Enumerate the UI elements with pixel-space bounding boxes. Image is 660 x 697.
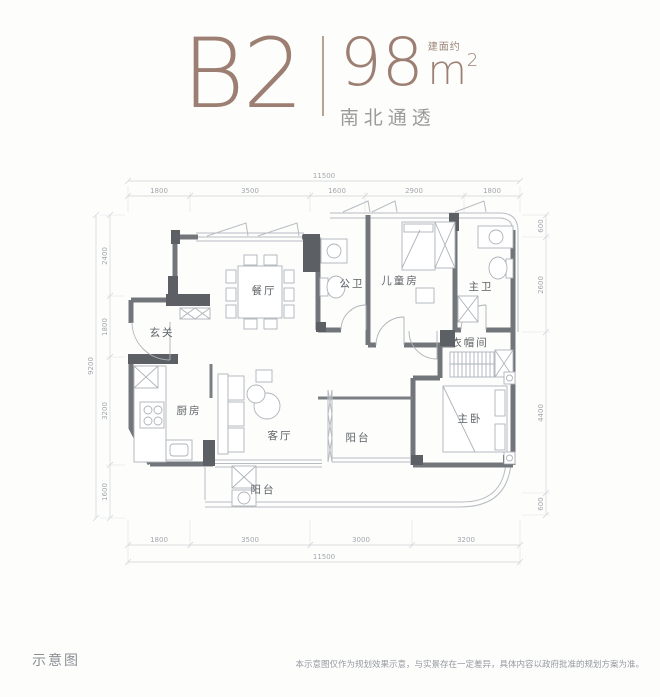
public-bath-door-arc <box>341 305 366 330</box>
dim-right-seg-3: 4400 <box>537 404 545 422</box>
dim-bottom: 1800 3500 3000 3200 11500 <box>125 536 523 565</box>
room-label-living: 客厅 <box>268 429 293 442</box>
shoe-cabinet <box>180 308 210 319</box>
dim-left-seg-3: 3200 <box>101 402 109 420</box>
room-label-master-bath: 主卫 <box>469 281 494 293</box>
room-label-public-bath: 公卫 <box>340 278 365 290</box>
coffee-table <box>247 385 280 419</box>
dim-right-seg-4: 600 <box>537 497 545 510</box>
dim-top-seg-4: 2900 <box>405 187 423 195</box>
schematic-label: 示意图 <box>32 650 80 670</box>
room-label-cloakroom: 衣帽间 <box>451 336 489 349</box>
master-bath-fixtures <box>458 226 513 322</box>
kids-room-door-arc <box>376 317 404 345</box>
dim-bottom-seg-2: 3500 <box>241 536 259 544</box>
dim-left-total: 9200 <box>87 357 95 375</box>
room-label-balcony-east: 阳台 <box>346 431 371 444</box>
floor-plan: 11500 1800 3500 1600 2900 1800 1800 3500… <box>0 0 660 697</box>
room-label-dining: 餐厅 <box>252 284 277 297</box>
dim-top-seg-2: 3500 <box>241 187 259 195</box>
dim-top-seg-1: 1800 <box>150 187 168 195</box>
dim-bottom-total: 11500 <box>313 553 335 561</box>
dim-top: 11500 1800 3500 1600 2900 1800 <box>125 172 523 199</box>
dim-left: 9200 2400 1800 3200 1600 <box>87 212 113 521</box>
room-label-kitchen: 厨房 <box>177 404 202 417</box>
dim-left-seg-1: 2400 <box>101 247 109 265</box>
room-label-kids-room: 儿童房 <box>381 274 419 287</box>
dim-bottom-seg-1: 1800 <box>150 536 168 544</box>
room-label-balcony-south: 阳台 <box>251 483 276 496</box>
cloakroom-rack <box>450 350 513 377</box>
dim-left-seg-4: 1600 <box>101 483 109 501</box>
dim-left-seg-2: 1800 <box>101 318 109 336</box>
room-label-master-bedroom: 主卧 <box>458 412 483 425</box>
dim-top-total: 11500 <box>313 172 335 180</box>
dim-right-seg-2: 2600 <box>537 276 545 294</box>
dim-top-seg-5: 1800 <box>483 187 501 195</box>
disclaimer-text: 本示意图仅作为规划效果示意，与实景存在一定差异，具体内容以政府批准的规划方案为准… <box>295 658 644 670</box>
dim-bottom-seg-3: 3000 <box>352 536 370 544</box>
dim-top-seg-3: 1600 <box>328 187 346 195</box>
kids-wardrobe <box>435 222 455 268</box>
dim-right: 600 2600 4400 600 <box>537 212 549 518</box>
dim-right-seg-1: 600 <box>537 219 545 232</box>
dim-bottom-seg-4: 3200 <box>457 536 475 544</box>
kids-bed <box>402 222 435 303</box>
room-label-foyer: 玄关 <box>150 326 175 339</box>
